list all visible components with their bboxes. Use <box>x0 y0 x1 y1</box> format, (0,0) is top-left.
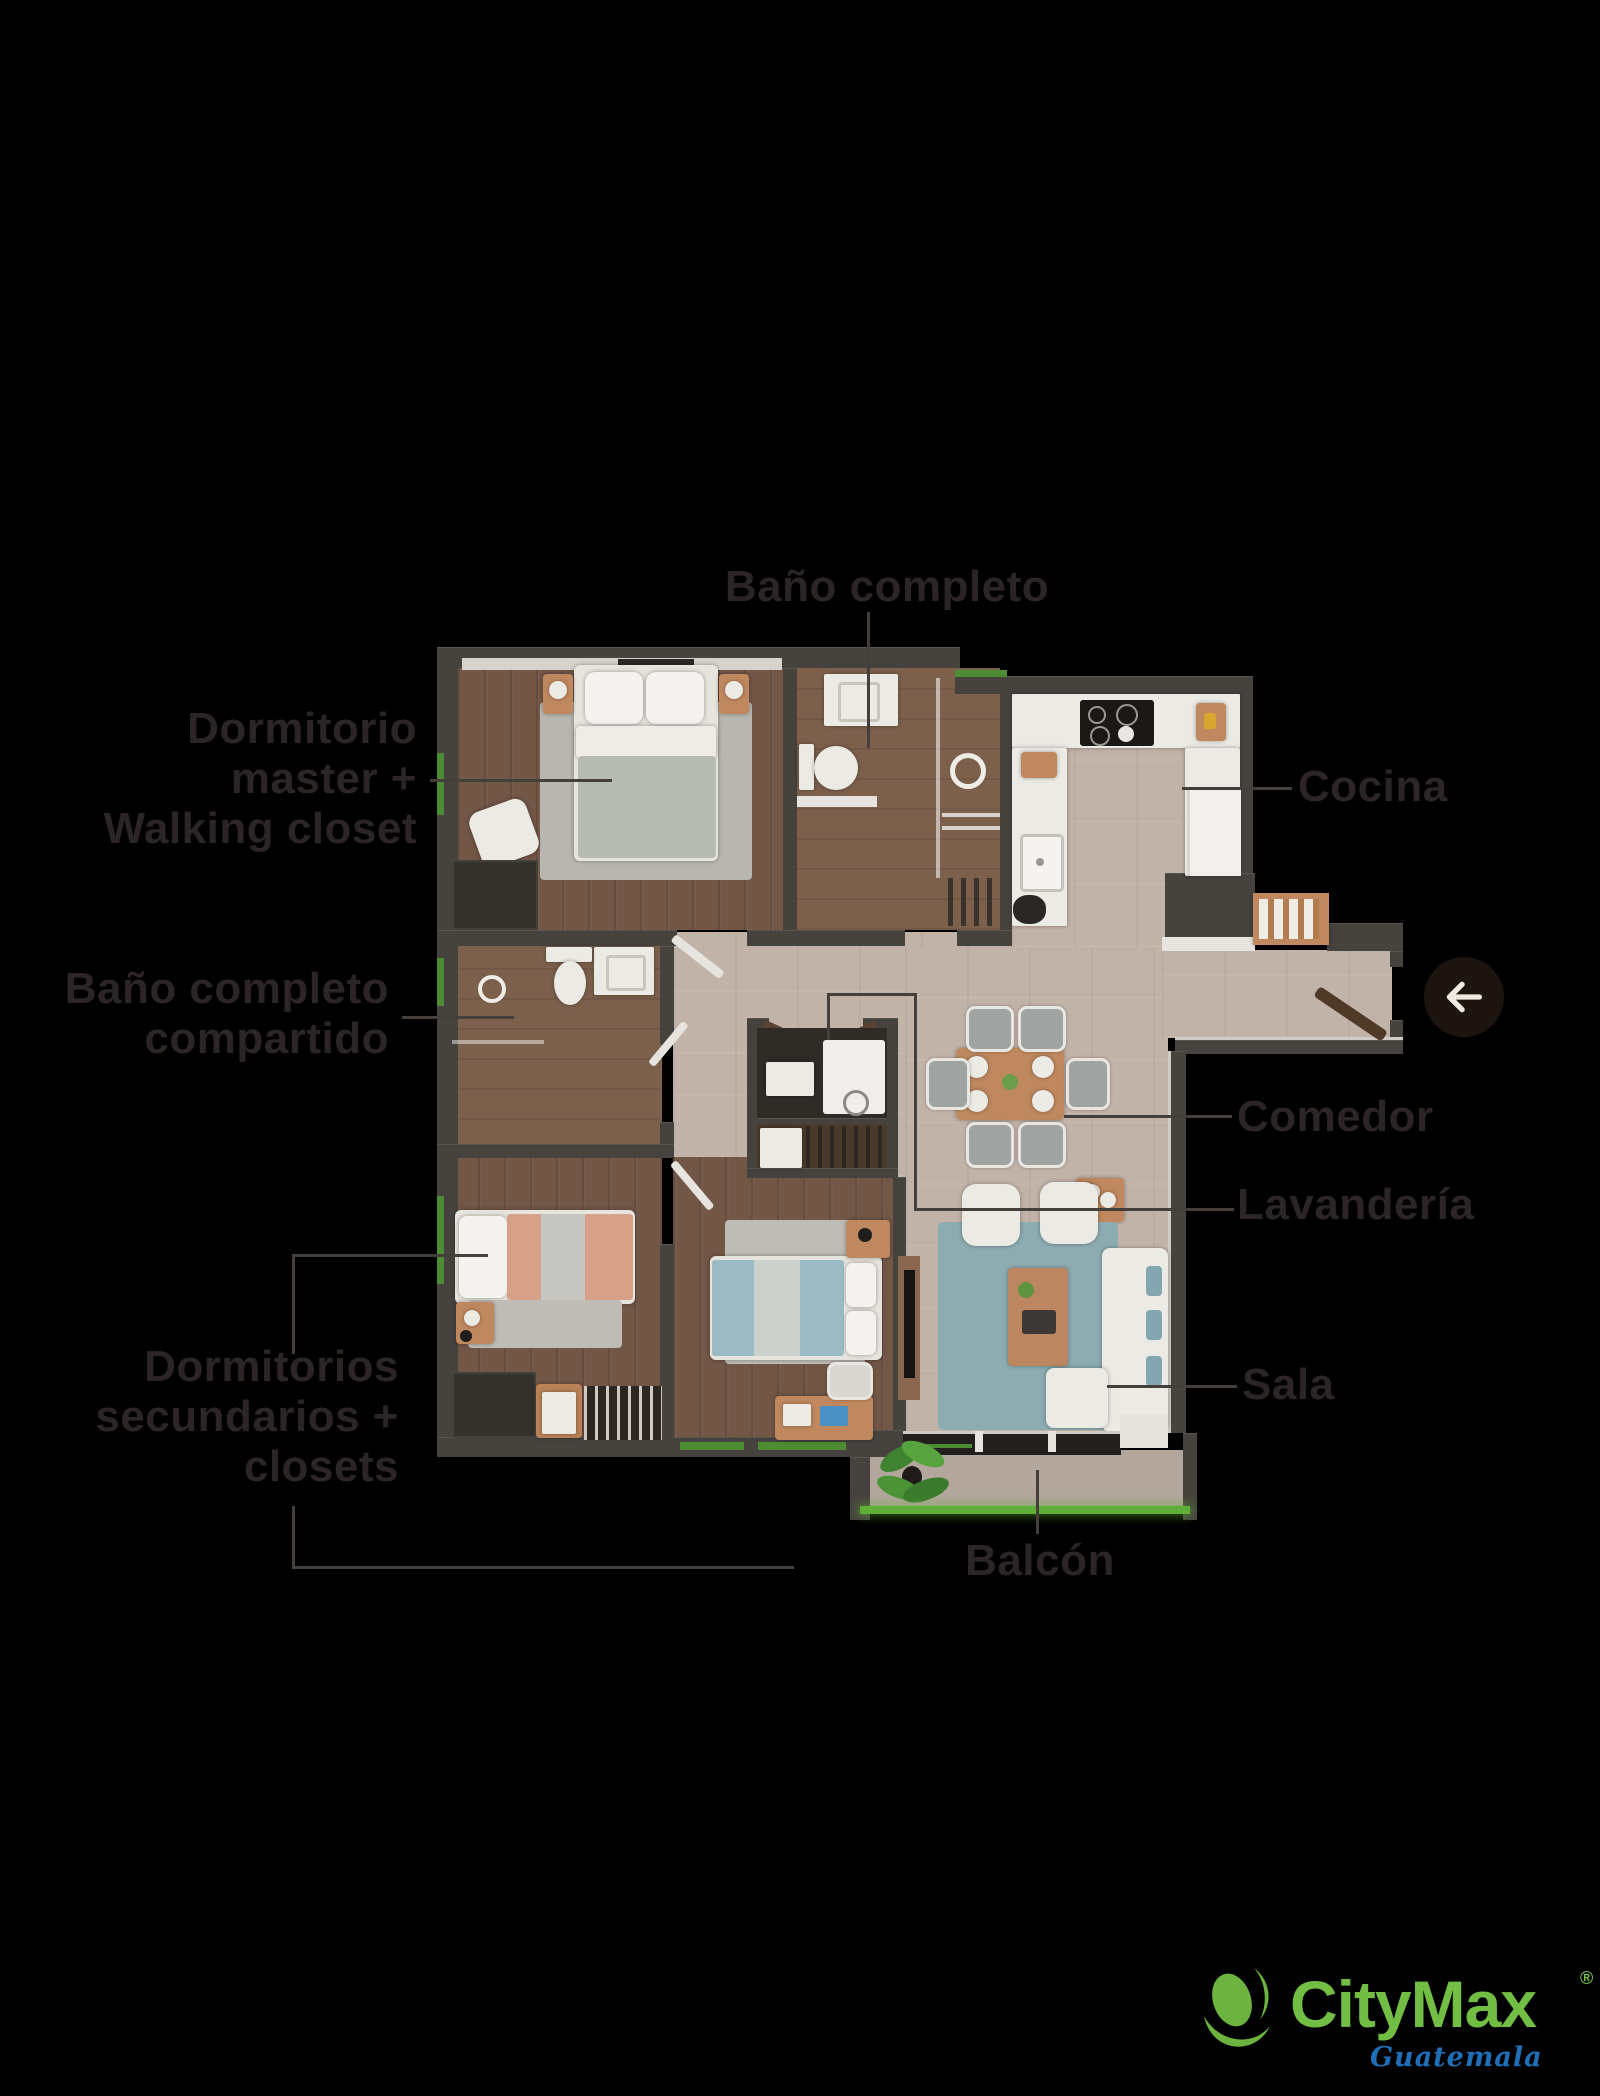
citymax-region-text: Guatemala <box>1370 2042 1543 2073</box>
registered-mark: ® <box>1580 1968 1593 1989</box>
leader-dormitorios-h1 <box>292 1254 488 1257</box>
sofa-pillow-3 <box>1146 1356 1162 1386</box>
label-lavanderia: Lavandería <box>1237 1180 1474 1230</box>
master-wardrobe <box>452 860 538 930</box>
dining-chair-5 <box>926 1058 970 1110</box>
side-table-pot-2 <box>1100 1192 1116 1208</box>
sofa-pillow-1 <box>1146 1266 1162 1296</box>
living-armchair-2 <box>1040 1182 1098 1244</box>
leader-sala <box>1107 1385 1237 1388</box>
bed2-pillow-1 <box>846 1263 876 1307</box>
bath1-shower-glass <box>936 678 940 878</box>
kitchen-stool <box>1013 895 1046 924</box>
slider-divider-2 <box>1048 1431 1056 1452</box>
window-left-2 <box>437 958 444 1006</box>
wall-bath-kitchen-divider <box>1000 676 1012 932</box>
laundry-small-appliance <box>760 1128 802 1168</box>
dining-chair-6 <box>1066 1058 1110 1110</box>
laundry-washer-door <box>843 1090 869 1116</box>
bed1-pillows <box>459 1216 507 1298</box>
window-bottom-2 <box>758 1442 846 1450</box>
cooktop-burner-3 <box>1090 726 1110 746</box>
leader-lavanderia-tip <box>827 995 830 1040</box>
bath1-shower-head <box>950 753 986 789</box>
balcony-pillar <box>1120 1414 1168 1448</box>
label-sala: Sala <box>1242 1360 1335 1410</box>
dining-chair-4 <box>1018 1122 1066 1168</box>
plate-2 <box>1032 1056 1054 1078</box>
wall-living-right <box>1168 1051 1186 1433</box>
wall-master-bath-divider <box>783 668 797 930</box>
bath2-toilet-bowl <box>554 961 586 1005</box>
cooktop-burner-2 <box>1116 704 1138 726</box>
wall-bedroom1-right <box>660 1244 674 1440</box>
sofa-chaise <box>1046 1368 1108 1428</box>
wall-entry-block <box>1165 873 1255 939</box>
leader-dormitorios-v1 <box>292 1254 295 1354</box>
kitchen-bottle <box>1204 713 1216 729</box>
coffee-table-plant <box>1018 1282 1034 1298</box>
label-cocina: Cocina <box>1298 762 1448 812</box>
lamp-right <box>725 681 743 699</box>
master-blanket <box>576 726 716 758</box>
cooktop-burner-4 <box>1118 726 1134 742</box>
wall-bath2-bottom <box>437 1144 674 1158</box>
window-left-3 <box>437 1196 444 1284</box>
bed2-printer <box>783 1404 811 1426</box>
master-duvet <box>578 756 716 858</box>
citymax-brand-text: CityMax <box>1290 1966 1536 2042</box>
label-comedor: Comedor <box>1237 1092 1434 1142</box>
bath2-basin <box>606 955 646 991</box>
bed1-vase <box>460 1330 472 1342</box>
bed2-coffee-maker <box>858 1228 872 1242</box>
bed1-lamp <box>464 1310 480 1326</box>
laundry-drawer-unit <box>766 1062 814 1096</box>
wall-laundry-left <box>747 1018 757 1176</box>
plate-4 <box>1032 1090 1054 1112</box>
leader-dormitorio-master <box>430 779 612 782</box>
window-top-1 <box>955 670 1007 677</box>
leader-comedor <box>1064 1115 1232 1118</box>
wall-bath1-bottom-b <box>957 930 1012 946</box>
dining-chair-2 <box>1018 1006 1066 1052</box>
wall-laundry-bottom <box>747 1168 898 1178</box>
hall-floor-lower <box>673 1054 747 1158</box>
dining-centerpiece <box>1002 1074 1018 1090</box>
leader-dormitorios-v2 <box>292 1506 295 1568</box>
wall-entry-right-a <box>1390 951 1403 967</box>
wall-kitchen-right <box>1240 676 1253 880</box>
wall-bath2-right-a <box>660 946 674 1044</box>
slider-divider-1 <box>975 1431 983 1452</box>
bath1-toilet-bowl <box>814 746 858 790</box>
bed1-wardrobe <box>452 1372 536 1438</box>
citymax-logo: CityMax ® Guatemala <box>1198 1958 1598 2078</box>
label-dormitorio-master: Dormitorio master + Walking closet <box>17 704 417 854</box>
leader-lavanderia-h1 <box>827 993 917 996</box>
bed1-closet-drawers <box>542 1392 576 1434</box>
leader-lavanderia-h2 <box>914 1208 1234 1211</box>
wall-laundry-right <box>887 1018 898 1176</box>
window-bottom-1 <box>680 1442 744 1450</box>
bath1-pony-wall <box>797 796 877 807</box>
bed2-desk-chair <box>827 1362 873 1400</box>
bath2-toilet-tank <box>546 947 592 962</box>
label-bano-compartido: Baño completo compartido <box>0 964 389 1064</box>
coffee-table-tray <box>1022 1310 1056 1334</box>
living-armchair-1 <box>962 1184 1020 1246</box>
citymax-swoosh-icon <box>1198 1964 1288 2064</box>
bath2-shower-drain <box>478 975 506 1003</box>
label-balcon: Balcón <box>890 1536 1190 1586</box>
entry-ledge <box>1162 937 1255 951</box>
dining-chair-3 <box>966 1122 1014 1168</box>
arrow-left-icon <box>1441 974 1487 1020</box>
wall-entry-top <box>1327 923 1403 951</box>
kitchen-faucet <box>1036 858 1044 866</box>
bed1-hanging-clothes <box>584 1386 662 1440</box>
leader-bano-compartido <box>402 1016 514 1019</box>
bath1-towel-rack <box>948 878 998 926</box>
label-bano-completo: Baño completo <box>587 562 1187 612</box>
leader-dormitorios-h2 <box>292 1566 794 1569</box>
sofa-pillow-2 <box>1146 1310 1162 1340</box>
bed2-runner <box>754 1260 800 1356</box>
wall-master-bottom-a <box>437 930 677 946</box>
kitchen-fridge <box>1187 790 1241 876</box>
window-left-1 <box>437 753 444 815</box>
bed2-pillow-2 <box>846 1311 876 1355</box>
bed1-runner <box>541 1214 585 1300</box>
leader-balcon <box>1036 1470 1039 1534</box>
listing-image: Baño completo Dormitorio master + Walkin… <box>0 0 1600 2096</box>
dining-chair-1 <box>966 1006 1014 1052</box>
bath1-toilet-tank <box>799 744 814 790</box>
back-arrow-button[interactable] <box>1424 957 1504 1037</box>
bath1-basin <box>838 682 880 722</box>
entry-shoe-slats <box>1259 899 1319 939</box>
tv-screen <box>904 1270 915 1378</box>
bed2-laptop <box>820 1406 848 1426</box>
leader-lavanderia-v <box>914 993 917 1211</box>
balcony-railing <box>860 1506 1190 1514</box>
cooktop-burner-1 <box>1088 706 1106 724</box>
leader-cocina <box>1182 787 1292 790</box>
leader-bano-completo <box>867 612 870 748</box>
bath1-shelf-1 <box>942 813 1000 817</box>
bath2-shower-glass <box>452 1040 544 1044</box>
kitchen-board-2 <box>1021 752 1057 778</box>
laundry-hanging-rod <box>806 1126 884 1168</box>
label-dormitorios-secundarios: Dormitorios secundarios + closets <box>0 1342 399 1492</box>
bath1-shelf-2 <box>942 826 1000 830</box>
wall-bath1-bottom-a <box>797 930 905 946</box>
lamp-left <box>549 681 567 699</box>
master-pillow-left <box>585 672 643 724</box>
master-pillow-right <box>646 672 704 724</box>
wall-entry-bottom <box>1175 1037 1403 1054</box>
